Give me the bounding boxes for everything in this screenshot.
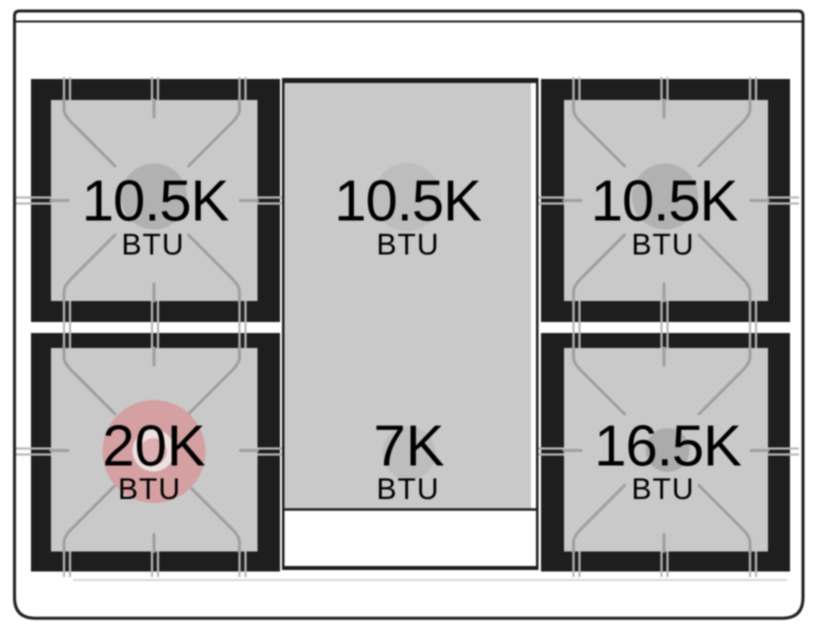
svg-text:BTU: BTU <box>122 229 185 262</box>
svg-text:BTU: BTU <box>632 473 695 506</box>
svg-text:BTU: BTU <box>118 473 181 506</box>
svg-text:16.5K: 16.5K <box>594 414 742 479</box>
svg-text:10.5K: 10.5K <box>334 169 482 234</box>
svg-text:20K: 20K <box>102 414 206 479</box>
svg-text:BTU: BTU <box>632 229 695 262</box>
svg-text:BTU: BTU <box>377 229 440 262</box>
svg-text:7K: 7K <box>374 414 445 479</box>
svg-text:BTU: BTU <box>377 473 440 506</box>
svg-text:10.5K: 10.5K <box>82 169 230 234</box>
svg-text:10.5K: 10.5K <box>591 169 739 234</box>
